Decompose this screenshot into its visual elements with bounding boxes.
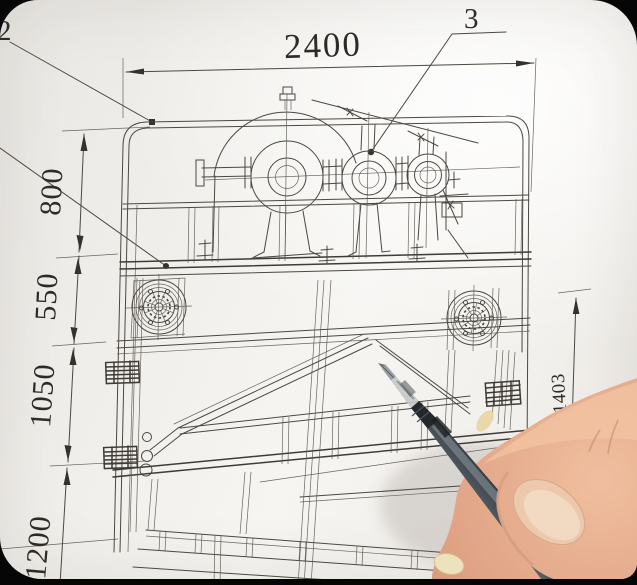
leaf-spring-stack-right bbox=[485, 381, 521, 406]
dim-1050-label: 1050 bbox=[24, 362, 61, 428]
callout-2: 2 bbox=[0, 15, 155, 125]
callout-3-label: 3 bbox=[464, 3, 480, 35]
drawing-photo: 2400 3 2 bbox=[0, 0, 637, 579]
mid-posts bbox=[282, 402, 428, 464]
dim-2400-label: 2400 bbox=[283, 24, 362, 66]
dim-1200-label: 1200 bbox=[19, 514, 57, 579]
technical-drawing-svg: 2400 3 2 bbox=[0, 0, 637, 579]
index-fingertip-nail bbox=[473, 407, 497, 434]
gearbox-right-bracket bbox=[440, 152, 468, 258]
callout-2-label: 2 bbox=[0, 15, 13, 47]
dim-550-label: 550 bbox=[29, 272, 64, 322]
dim-800-label: 800 bbox=[34, 167, 69, 217]
photo-stage: 2400 3 2 bbox=[0, 0, 637, 585]
gearbox-front-view bbox=[196, 87, 520, 258]
